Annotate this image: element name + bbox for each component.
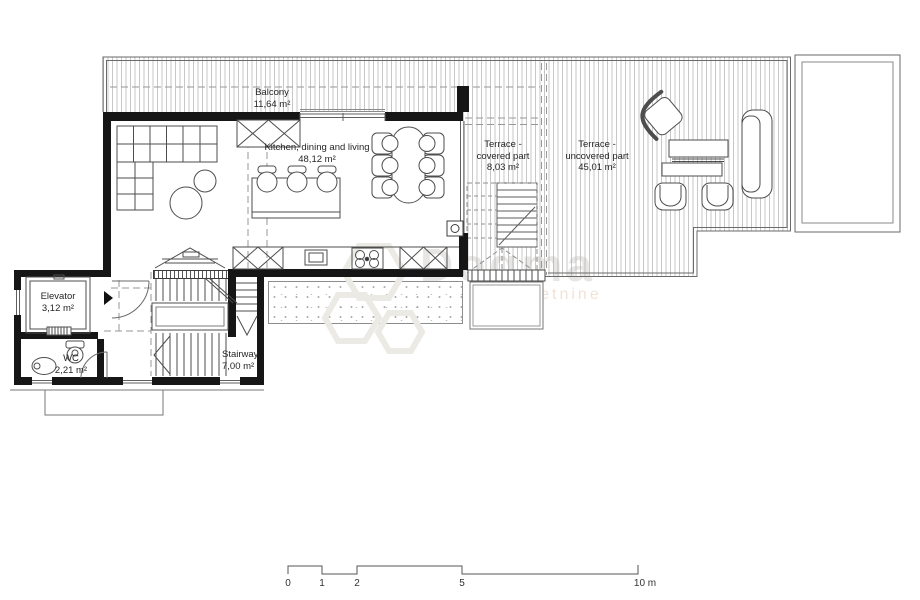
terrace-uncovered-label: Terrace - uncovered part 45,01 m²: [565, 139, 628, 174]
balcony-window: [300, 110, 385, 122]
scale-tick-5: 5: [459, 578, 465, 589]
entrance-landing: [10, 390, 264, 415]
room-area: 8,03 m²: [477, 162, 530, 174]
room-name-2: uncovered part: [565, 151, 628, 163]
room-name: Balcony: [254, 87, 291, 99]
coffee-tables: [170, 170, 216, 219]
room-name: Stairway: [222, 349, 258, 361]
elevator-door-arrow: [104, 291, 113, 305]
plan-linework: [0, 0, 920, 600]
room-name-2: covered part: [477, 151, 530, 163]
room-area: 3,12 m²: [41, 303, 76, 315]
stair-lower-landing: [470, 282, 543, 329]
room-name: Terrace -: [565, 139, 628, 151]
wc-sink: [32, 358, 56, 375]
room-area: 48,12 m²: [264, 154, 369, 166]
room-area: 11,64 m²: [254, 99, 291, 111]
dining-set: [372, 127, 444, 203]
room-area: 2,21 m²: [55, 365, 87, 377]
bar-stools: [257, 166, 337, 192]
adjacent-roof: [795, 55, 900, 232]
scale-tick-10: 10 m: [634, 578, 656, 589]
scale-tick-1: 1: [319, 578, 325, 589]
scale-tick-2: 2: [354, 578, 360, 589]
lounge-chair: [635, 91, 685, 141]
fireplace: [155, 248, 225, 268]
living-label: Kitchen, dining and living 48,12 m²: [264, 142, 369, 165]
structural-column: [447, 221, 463, 236]
room-name: Terrace -: [477, 139, 530, 151]
floor-plan: Dogma nekretnine: [0, 0, 920, 600]
kitchen-sink: [305, 250, 327, 265]
corner-sofa: [117, 126, 217, 210]
balcony-label: Balcony 11,64 m²: [254, 87, 291, 110]
room-name: WC: [55, 353, 87, 365]
scale-bar: [288, 565, 638, 574]
room-area: 7,00 m²: [222, 361, 258, 373]
scale-tick-0: 0: [285, 578, 291, 589]
wc-label: WC 2,21 m²: [55, 353, 87, 376]
terrace-table: [662, 140, 728, 176]
terrace-covered-label: Terrace - covered part 8,03 m²: [477, 139, 530, 174]
exterior-staircase: [467, 183, 545, 281]
terrace-sofa: [742, 110, 772, 198]
glass-wall-east: [461, 121, 465, 233]
room-area: 45,01 m²: [565, 162, 628, 174]
room-name: Kitchen, dining and living: [264, 142, 369, 154]
entry-door-arc: [112, 281, 149, 318]
terrace-chairs: [655, 183, 733, 210]
elevator-label: Elevator 3,12 m²: [41, 291, 76, 314]
room-name: Elevator: [41, 291, 76, 303]
stairway-label: Stairway 7,00 m²: [222, 349, 258, 372]
